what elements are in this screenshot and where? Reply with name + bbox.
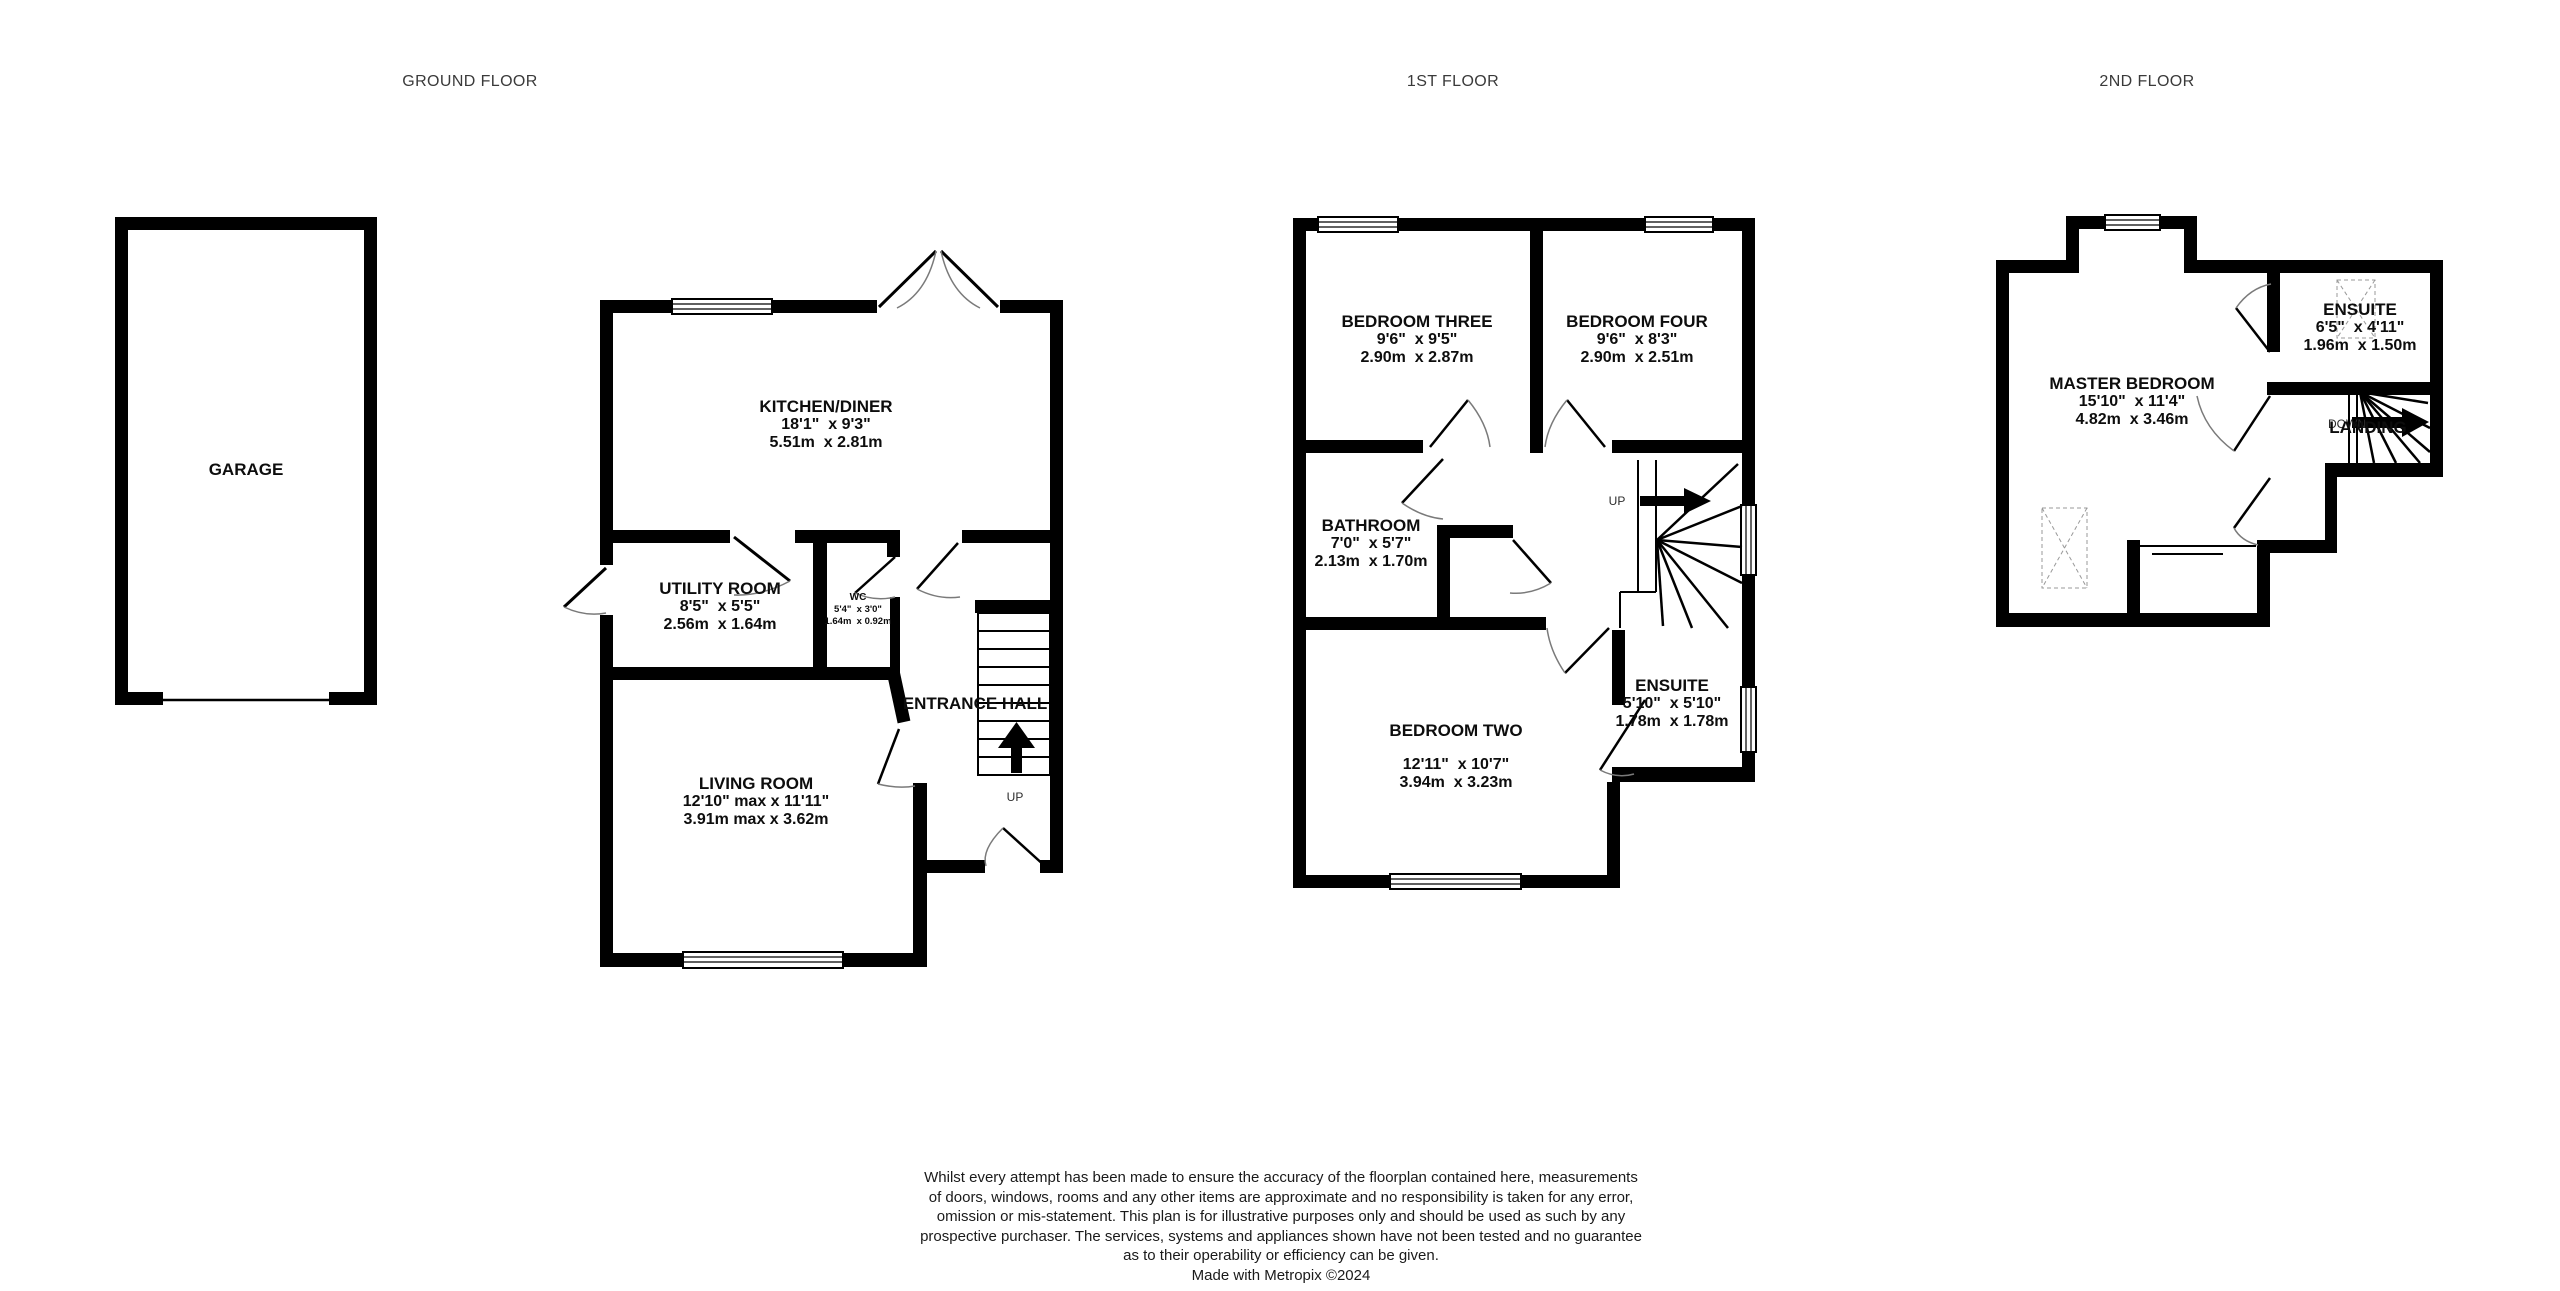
ensuite-window	[1741, 687, 1756, 752]
room-label-utility-room: UTILITY ROOM 8'5" x 5'5" 2.56m x 1.64m	[659, 580, 781, 634]
room-label-bedroom-three: BEDROOM THREE 9'6" x 9'5" 2.90m x 2.87m	[1341, 313, 1492, 367]
kitchen-hall-door	[917, 543, 960, 598]
french-doors	[879, 251, 998, 308]
floorplan-drawing	[0, 0, 2560, 1291]
lobby-door	[1510, 540, 1551, 593]
room-label-landing: LANDING	[2329, 419, 2406, 437]
floorplan-canvas: GROUND FLOOR 1ST FLOOR 2ND FLOOR GARAGE …	[0, 0, 2560, 1291]
first-floor-title: 1ST FLOOR	[1407, 73, 1499, 91]
bedroom-three-door	[1430, 400, 1490, 447]
room-label-garage: GARAGE	[209, 461, 284, 479]
room-label-bedroom-four: BEDROOM FOUR 9'6" x 8'3" 2.90m x 2.51m	[1566, 313, 1708, 367]
first-staircase	[1620, 460, 1742, 628]
room-label-wc: WC 5'4" x 3'0" 1.64m x 0.92m	[824, 592, 891, 628]
disclaimer-line: omission or mis-statement. This plan is …	[751, 1207, 1811, 1227]
disclaimer-line: Whilst every attempt has been made to en…	[751, 1168, 1811, 1188]
room-label-ensuite-second: ENSUITE 6'5" x 4'11" 1.96m x 1.50m	[2304, 301, 2417, 355]
bedroom-four-door	[1545, 400, 1605, 447]
room-label-living-room: LIVING ROOM 12'10" max x 11'11" 3.91m ma…	[683, 775, 829, 829]
velux-master	[2042, 508, 2087, 588]
disclaimer-line: of doors, windows, rooms and any other i…	[751, 1188, 1811, 1208]
disclaimer-line: Made with Metropix ©2024	[751, 1266, 1811, 1286]
ground-floor-title: GROUND FLOOR	[402, 73, 537, 91]
bathroom-door	[1402, 459, 1443, 519]
room-label-bathroom: BATHROOM 7'0" x 5'7" 2.13m x 1.70m	[1315, 517, 1428, 571]
ensuite-door	[2236, 284, 2271, 352]
utility-exterior-door	[564, 568, 606, 614]
bedroom-three-window	[1318, 217, 1398, 232]
bedroom-two-window	[1390, 874, 1521, 889]
living-room-window	[683, 952, 843, 968]
living-hall-door	[878, 729, 915, 787]
room-label-ensuite-first: ENSUITE 5'10" x 5'10" 1.78m x 1.78m	[1616, 677, 1729, 731]
second-floor-title: 2ND FLOOR	[2099, 73, 2194, 91]
disclaimer-line: prospective purchaser. The services, sys…	[751, 1227, 1811, 1247]
room-label-bedroom-two: BEDROOM TWO 12'11" x 10'7" 3.94m x 3.23m	[1389, 722, 1522, 792]
room-label-entrance-hall: ENTRANCE HALL	[903, 695, 1048, 713]
disclaimer-line: as to their operability or efficiency ca…	[751, 1246, 1811, 1266]
up-label-first: UP	[1609, 494, 1626, 508]
kitchen-window	[672, 299, 772, 314]
stairs-window	[1741, 505, 1756, 575]
bedroom-two-door	[1547, 628, 1609, 673]
dormer-window	[2105, 215, 2160, 230]
front-door	[985, 828, 1046, 867]
up-label-ground: UP	[1007, 790, 1024, 804]
up-arrow	[1640, 488, 1711, 514]
wardrobe-lines	[2140, 546, 2256, 554]
bedroom-four-window	[1645, 217, 1713, 232]
ground-floor-plan	[115, 217, 1063, 968]
room-label-master-bedroom: MASTER BEDROOM 15'10" x 11'4" 4.82m x 3.…	[2049, 375, 2214, 429]
master-eaves-door	[2234, 478, 2270, 545]
room-label-kitchen-diner: KITCHEN/DINER 18'1" x 9'3" 5.51m x 2.81m	[759, 398, 892, 452]
disclaimer: Whilst every attempt has been made to en…	[751, 1168, 1811, 1285]
